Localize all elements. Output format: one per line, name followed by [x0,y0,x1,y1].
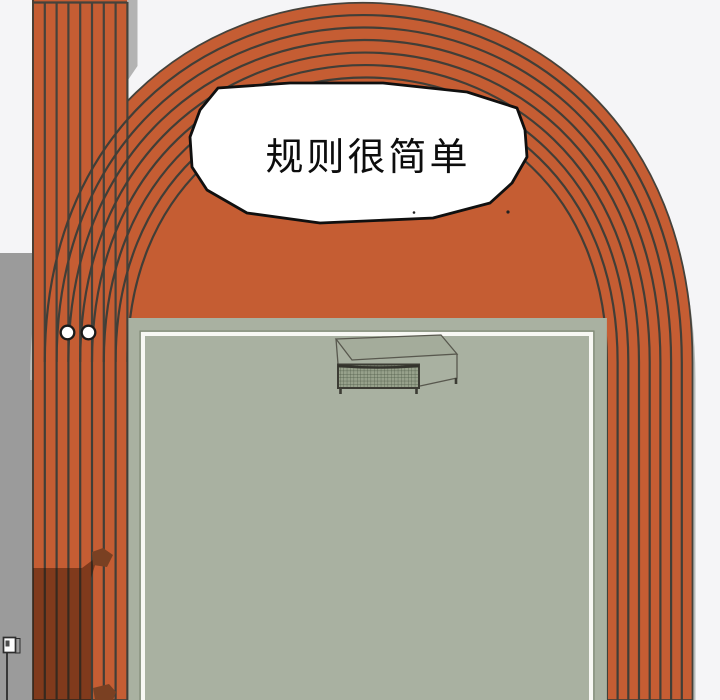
start-marker-dot [82,326,96,340]
extension-drop-shadow [128,0,138,80]
ink-speck [413,211,416,214]
sign-mark [6,641,10,647]
left-wall-strip [0,253,33,700]
comic-panel: 规则很简单 [0,0,720,700]
ground-shadow [33,556,98,700]
speech-bubble: 规则很简单 [190,83,527,223]
start-marker-dot [61,326,75,340]
ink-speck [506,210,509,213]
speech-bubble-text: 规则很简单 [265,135,470,179]
